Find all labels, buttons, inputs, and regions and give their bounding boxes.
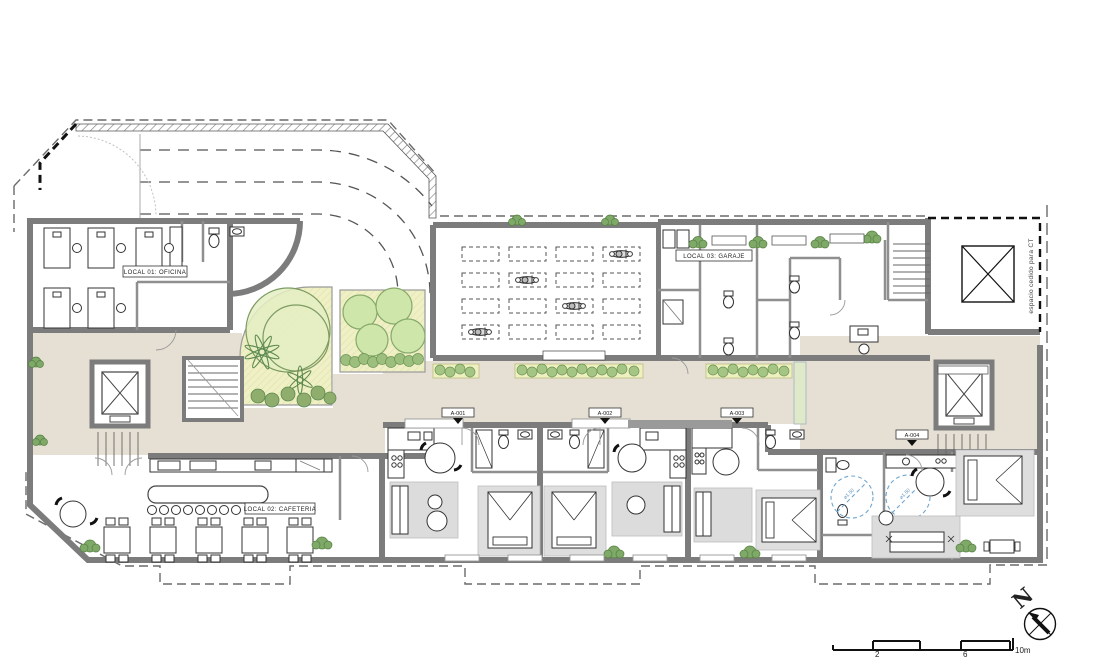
bed-icon <box>956 450 1034 516</box>
office-bathroom <box>209 227 244 248</box>
dining-table <box>713 449 739 475</box>
garage-label: LOCAL 03: GARAJE <box>683 254 745 260</box>
bathroom <box>766 430 805 449</box>
bathroom <box>476 430 532 468</box>
stairs-staff <box>893 244 930 293</box>
elevator-left <box>92 362 148 426</box>
large-tree-icon <box>246 288 330 372</box>
side-table <box>627 496 645 514</box>
scale-tick-label: 2 <box>875 650 880 659</box>
ct-room: espacio cedido para CT <box>962 238 1035 313</box>
bar-counter <box>148 486 268 503</box>
dining-table <box>912 468 950 496</box>
sofa-icon <box>886 532 954 552</box>
side-table <box>427 511 447 531</box>
bed-icon <box>544 486 606 556</box>
scale-tick-label: 6 <box>963 650 968 659</box>
cafeteria-area: LOCAL 02: CAFETERIA <box>56 459 332 562</box>
unit-a001 <box>388 428 540 556</box>
window-sill-dark <box>628 420 732 428</box>
unit-a004: ⌀1.50 ⌀1.50 <box>826 450 1034 558</box>
round-table <box>56 498 97 527</box>
unit-tag-label: A-001 <box>451 411 466 417</box>
cafeteria-label: LOCAL 02: CAFETERIA <box>244 507 316 513</box>
kitchen-counter <box>886 455 962 468</box>
dining-table <box>614 444 646 472</box>
north-label: N <box>1007 582 1038 613</box>
kitchen-counter <box>640 428 686 478</box>
back-counter <box>150 459 332 472</box>
sofa-icon <box>664 486 680 532</box>
office-desk <box>44 227 182 328</box>
unit-tag-label: A-004 <box>905 433 920 439</box>
ramp-gate-arc <box>78 136 156 216</box>
scale-tick-label: 10m <box>1015 646 1031 655</box>
sofa-icon <box>696 492 711 536</box>
unit-tag-label: A-003 <box>730 411 745 417</box>
unit-a002 <box>544 428 686 556</box>
garage-entry-box <box>543 351 605 360</box>
side-table <box>879 511 893 525</box>
unit-tag-label: A-002 <box>598 411 613 417</box>
scale-bar: 2 6 10m <box>833 638 1031 659</box>
office-area: LOCAL 01: OFICINA <box>44 227 244 328</box>
bar-stool <box>148 506 241 515</box>
ct-label: espacio cedido para CT <box>1028 238 1035 313</box>
bed-icon <box>478 486 540 556</box>
turning-radius-label: ⌀1.50 <box>899 487 912 500</box>
bathroom <box>548 430 604 468</box>
stairwell-center <box>184 358 242 420</box>
office-label: LOCAL 01: OFICINA <box>124 270 186 276</box>
cafe-table <box>104 518 313 562</box>
floor-plan-drawing: LOCAL 01: OFICINA LOCAL 03: GARAJE <box>0 0 1101 671</box>
north-arrow: N <box>1007 582 1055 639</box>
floor-plan-page: LOCAL 01: OFICINA LOCAL 03: GARAJE <box>0 0 1101 671</box>
bed-icon <box>756 490 820 550</box>
elevator-right <box>936 362 992 428</box>
bathroom-accessible <box>826 458 849 525</box>
sofa-icon <box>392 486 408 534</box>
turning-radius-label: ⌀1.50 <box>843 487 856 500</box>
side-table <box>428 495 442 509</box>
ramp-wall-hatched <box>76 124 436 218</box>
balcony <box>956 540 1020 553</box>
toilet-icon <box>724 276 800 355</box>
